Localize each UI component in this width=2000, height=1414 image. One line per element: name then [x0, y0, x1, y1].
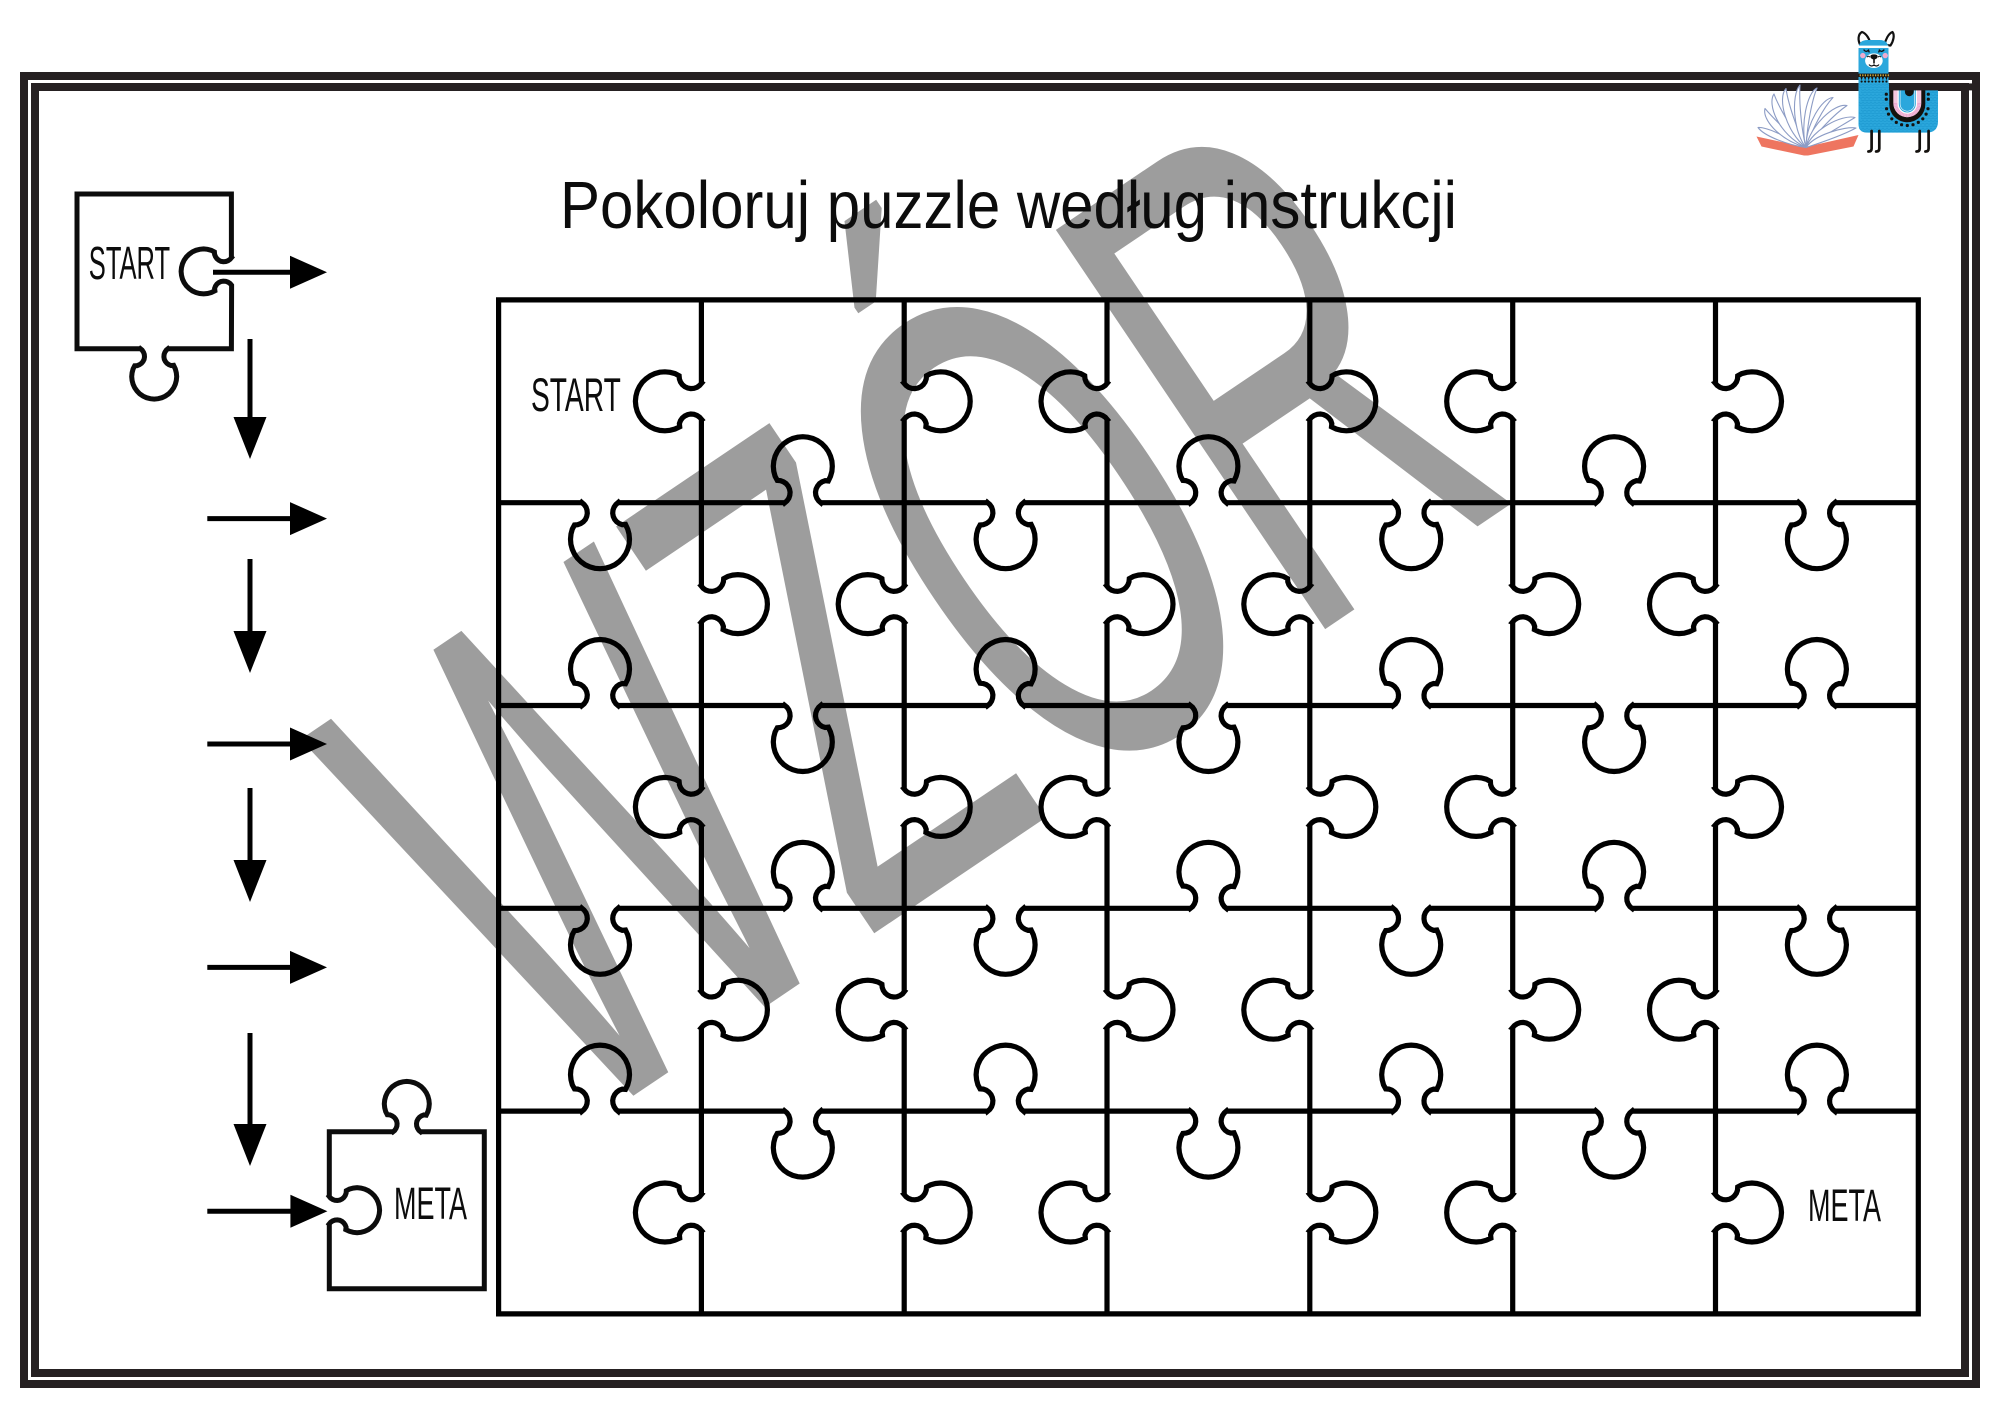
svg-text:START: START: [89, 237, 170, 289]
svg-text:Pokoloruj puzzle według instru: Pokoloruj puzzle według instrukcji: [560, 168, 1457, 243]
svg-text:START: START: [531, 370, 621, 422]
svg-text:META: META: [394, 1178, 467, 1229]
svg-text:META: META: [1808, 1180, 1881, 1231]
